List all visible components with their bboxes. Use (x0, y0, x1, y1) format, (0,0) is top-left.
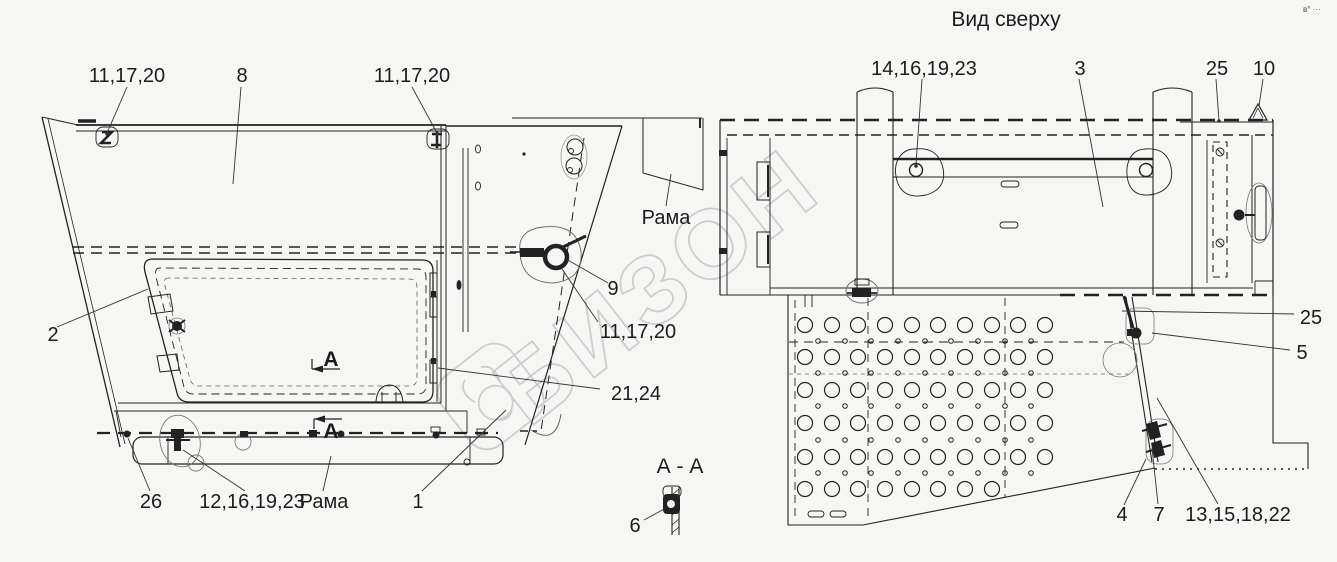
callout-9: 9 (607, 278, 618, 300)
callout-7: 7 (1153, 504, 1164, 526)
top-view-leaders (914, 79, 1294, 505)
callout-2: 2 (47, 324, 58, 346)
callout-11-17-20-left: 11,17,20 (89, 65, 165, 87)
callout-13-15-18-22: 13,15,18,22 (1185, 504, 1291, 526)
section-mark-lower: А (323, 420, 338, 443)
callout-14-16-19-23: 14,16,19,23 (871, 58, 977, 80)
callout-12-16-19-23: 12,16,19,23 (199, 491, 305, 513)
corner-mark: в° ··· (1303, 5, 1321, 14)
callout-5: 5 (1296, 342, 1307, 364)
callout-25-top: 25 (1206, 58, 1228, 80)
callout-26: 26 (140, 491, 162, 513)
section-detail-drawing (663, 486, 681, 535)
plate-holes (798, 318, 1053, 497)
callout-1: 1 (412, 491, 423, 513)
frame-label-right: Рама (642, 207, 692, 229)
top-view-title: Вид сверху (951, 8, 1061, 31)
callout-25-right: 25 (1300, 307, 1322, 329)
callout-11-17-20-mid: 11,17,20 (374, 65, 450, 87)
diagram-canvas: БИЗОН (0, 0, 1337, 562)
callout-4: 4 (1116, 504, 1127, 526)
callout-6: 6 (629, 515, 640, 537)
callout-8: 8 (236, 65, 247, 87)
watermark: БИЗОН (429, 126, 840, 458)
frame-label-bottom: Рама (300, 491, 350, 513)
callout-3: 3 (1074, 58, 1085, 80)
top-view-drawing (719, 88, 1308, 525)
callout-11-17-20-right: 11,17,20 (600, 321, 676, 343)
section-mark-upper: А (323, 348, 338, 371)
section-view-title: А - А (657, 455, 704, 478)
callout-21-24: 21,24 (611, 383, 661, 405)
parts-diagram: БИЗОН (0, 0, 1337, 562)
callout-10: 10 (1253, 58, 1275, 80)
